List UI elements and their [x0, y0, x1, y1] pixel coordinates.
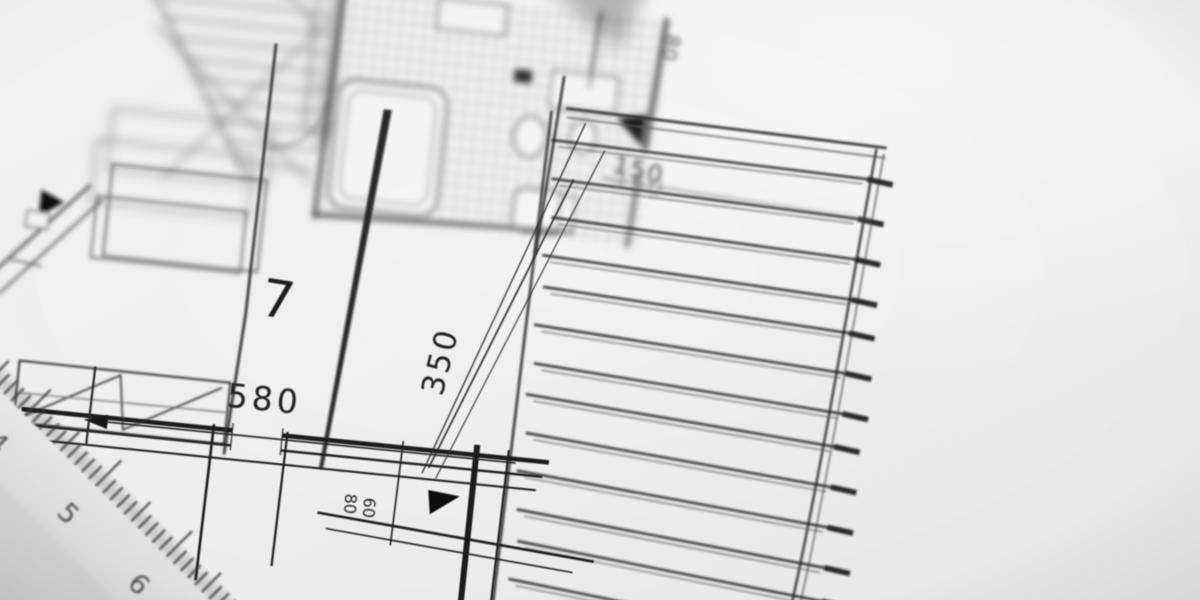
- vignette: [0, 0, 1200, 600]
- photo-architectural-floor-plan: 150 150 80: [0, 0, 1200, 600]
